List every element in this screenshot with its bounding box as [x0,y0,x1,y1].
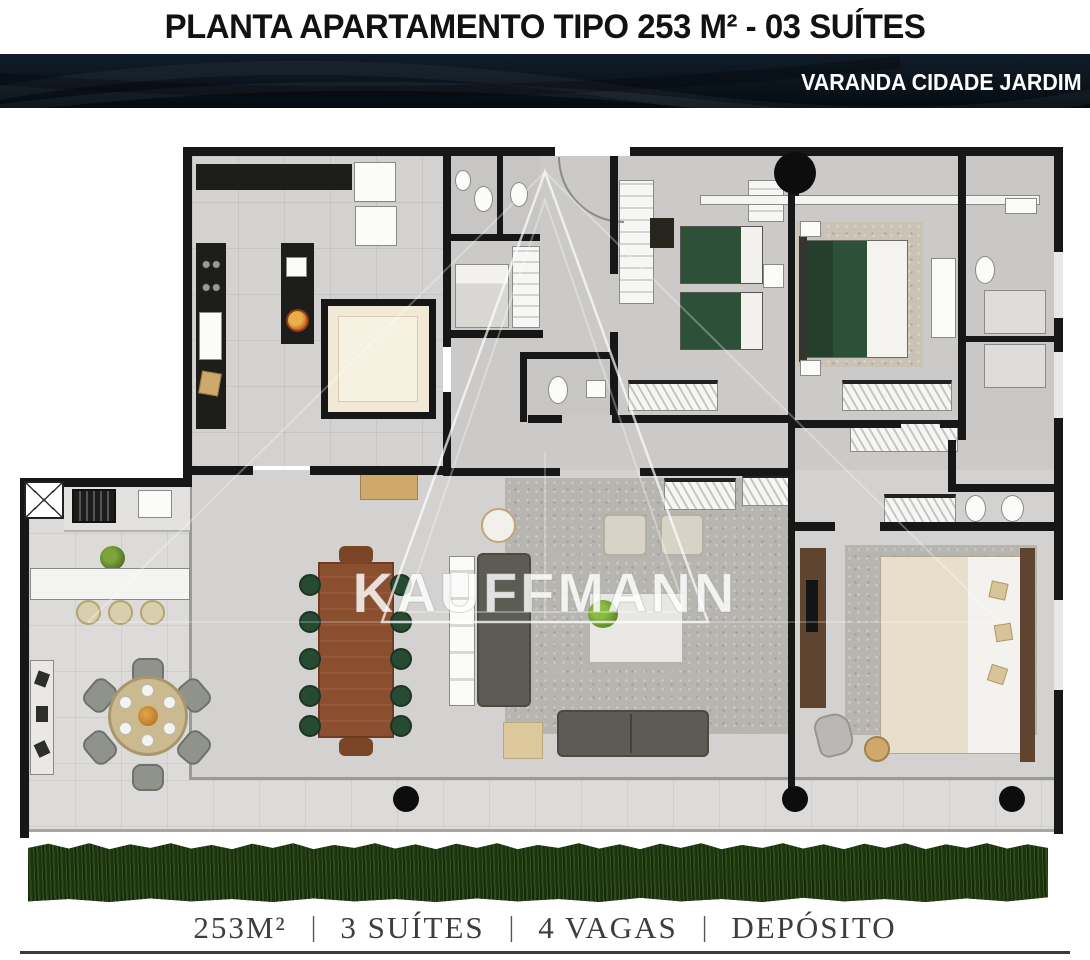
wall-top-left [183,147,555,156]
kitchen-top-counter [196,164,352,190]
bedroom3-closet [512,246,540,328]
living-plant [588,600,618,628]
terrace-bottom-strip [29,780,1054,830]
suite1-headboard [799,236,807,362]
living-utility-closet [664,478,736,510]
kitchen-oven-tower [354,162,396,202]
banner-label: VARANDA CIDADE JARDIM [802,69,1082,96]
master-tv [806,580,818,632]
lavabo-sink [586,380,606,398]
master-bath-toilet [965,495,986,522]
terrace-chair-s [132,764,164,791]
shaft-box [24,481,64,519]
suite1-bed [806,240,908,358]
wall-corridor-bottom-a [528,415,562,423]
dining-chair-end-bottom [339,738,373,756]
window-right-3 [1054,600,1063,690]
kitchen-fridge [355,206,397,246]
wall-suite1-bottom-b [940,420,958,428]
bedroom3-bed [455,264,509,328]
terrace-plate-5 [119,722,132,735]
kitchen-fruit-bowl [286,309,309,332]
shelf-item-2 [36,706,48,722]
living-sofa-second [557,710,709,757]
column-top [774,152,816,194]
dining-chair-right-4 [390,685,412,707]
living-round-table [481,508,516,543]
bath1-sink [455,170,471,191]
wall-hall-living-b [640,468,790,476]
window-right-1 [1054,252,1063,318]
kitchen-coffee-machine [286,257,307,277]
suite1-bath-toilet [975,256,995,284]
corridor-closet-rack-2 [742,474,790,506]
spec-storage: DEPÓSITO [731,910,896,946]
wall-bedroom2-left-b [610,332,618,415]
column-bottom-2 [782,786,808,812]
header-banner: VARANDA CIDADE JARDIM [0,54,1090,108]
suite1-shower-1 [984,290,1046,334]
wall-kitchen-bottom-a [183,466,253,475]
terrace-sink [138,490,172,518]
column-bottom-3 [999,786,1025,812]
spec-separator: | [509,912,515,944]
suite1-nightstand-top [800,221,821,237]
dining-chair-right-5 [390,715,412,737]
terrace-stool-2 [108,600,133,625]
bedroom2-nightstand [763,264,784,288]
kitchen-cooktop [199,253,223,299]
wall-mid-vert-b [443,392,451,476]
dining-chair-left-4 [299,685,321,707]
spec-separator: | [311,912,317,944]
terrace-plate-1 [141,684,154,697]
page-title: PLANTA APARTAMENTO TIPO 253 M² - 03 SUÍT… [16,4,1073,50]
kitchen-cutting-board [198,370,222,396]
wall-master-bath-top [948,484,1054,492]
bedroom2-closet-rack [628,380,718,411]
living-sideboard [449,556,475,706]
column-bottom-1 [393,786,419,812]
master-cushion-1 [988,580,1008,600]
footer-specs: 253M² | 3 SUÍTES | 4 VAGAS | DEPÓSITO [0,908,1090,948]
wall-hall-living-a [451,468,560,476]
master-side-table [864,736,890,762]
master-headboard [1020,548,1035,762]
wall-suite1-bottom-a [795,420,901,428]
terrace-plate-2 [163,696,176,709]
wall-left-lower [20,478,29,838]
wall-master-top-a [795,522,835,531]
kitchen-sink [199,312,222,360]
wall-right-upper [1054,147,1063,537]
dining-table [318,562,394,738]
bedroom2-wardrobe [619,180,654,304]
suite1-closet-rack [842,380,952,411]
dining-chair-left-1 [299,574,321,596]
terrace-bar-counter [30,568,190,600]
wall-corridor-bottom-b [612,415,790,423]
dining-chair-end-top [339,546,373,564]
master-cushion-2 [994,623,1013,642]
bedroom2-bed-1 [680,226,763,284]
wall-master-top-b [880,522,1054,531]
terrace-edge-line [28,829,1054,832]
living-armchair-2 [660,514,704,556]
living-console [360,474,418,500]
suite1-shower-2 [984,344,1046,388]
terrace-stool-1 [76,600,101,625]
pantry-inner [338,316,418,402]
wall-bath-mid [962,336,1054,342]
dining-chair-left-2 [299,611,321,633]
wall-bath-divider-v [497,156,503,234]
grass-strip [28,842,1048,902]
terrace-plant [100,546,125,570]
suite1-bath-sink [1005,198,1037,214]
window-right-2 [1054,352,1063,418]
barbecue-grill [72,489,116,523]
terrace-stool-3 [140,600,165,625]
wall-bedroom2-left-a [610,156,618,274]
living-armchair-1 [603,514,647,556]
structural-section-line [788,193,795,799]
bath2-toilet [510,182,528,207]
dining-chair-right-1 [390,574,412,596]
dining-chair-left-5 [299,715,321,737]
bath1-toilet [474,186,493,212]
lavabo-toilet [548,376,568,404]
spec-suites: 3 SUÍTES [340,910,484,946]
wall-bath-divider-h [451,234,540,241]
wall-left-upper [183,147,192,487]
suite1-window-ledge [700,195,1040,205]
living-side-table [503,722,543,759]
suite1-vanity [931,258,956,338]
terrace-centerpiece [138,706,158,726]
spec-area: 253M² [193,910,286,946]
wall-kitchen-bottom-b [310,466,451,475]
bedroom2-tv-dresser [650,218,674,248]
dining-chair-left-3 [299,648,321,670]
living-sofa-main [477,553,531,707]
suite1-nightstand-bottom [800,360,821,376]
wall-bedroom3-bottom [443,330,543,338]
terrace-plate-4 [141,734,154,747]
dining-chair-right-2 [390,611,412,633]
spec-separator: | [702,912,708,944]
spec-parking: 4 VAGAS [538,910,677,946]
master-closet-rack [884,494,956,525]
master-bath-bidet [1001,495,1024,522]
terrace-divider-line-h [192,777,1054,780]
wall-suite1-bath [958,156,966,440]
living-sofa-cushion-line [630,714,632,753]
bedroom2-bed-2 [680,292,763,350]
terrace-plate-6 [119,696,132,709]
wall-mid-vert-a [443,147,451,347]
footer-rule [20,951,1070,954]
wall-lavabo-top [520,352,616,359]
wall-top-right [630,147,1063,156]
dining-chair-right-3 [390,648,412,670]
terrace-plate-3 [163,722,176,735]
wall-lavabo-left [520,352,527,422]
